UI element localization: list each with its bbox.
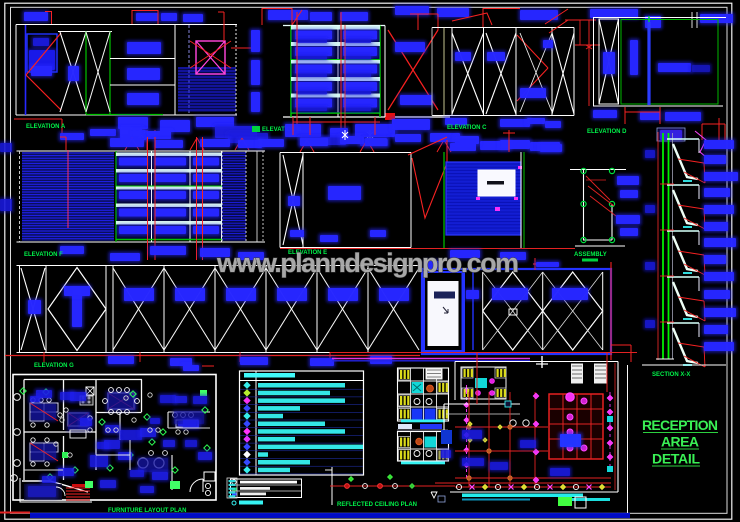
- svg-text:AREA: AREA: [661, 434, 699, 450]
- svg-text:DETAIL: DETAIL: [652, 451, 700, 467]
- svg-text:ELEVATION G: ELEVATION G: [34, 363, 74, 369]
- svg-text:RECEPTION: RECEPTION: [642, 417, 718, 433]
- svg-text:SECTION X-X: SECTION X-X: [652, 372, 690, 378]
- svg-text:REFLECTED CEILING PLAN: REFLECTED CEILING PLAN: [337, 502, 417, 508]
- svg-text:www.planndesignpro.com: www.planndesignpro.com: [216, 248, 519, 278]
- svg-text:ELEVATION C: ELEVATION C: [447, 125, 487, 131]
- svg-text:ELEVATION F: ELEVATION F: [24, 252, 63, 258]
- svg-text:ELEVATION D: ELEVATION D: [587, 129, 627, 135]
- svg-text:ASSEMBLY: ASSEMBLY: [574, 252, 607, 258]
- svg-text:ELEVATION A: ELEVATION A: [26, 124, 66, 130]
